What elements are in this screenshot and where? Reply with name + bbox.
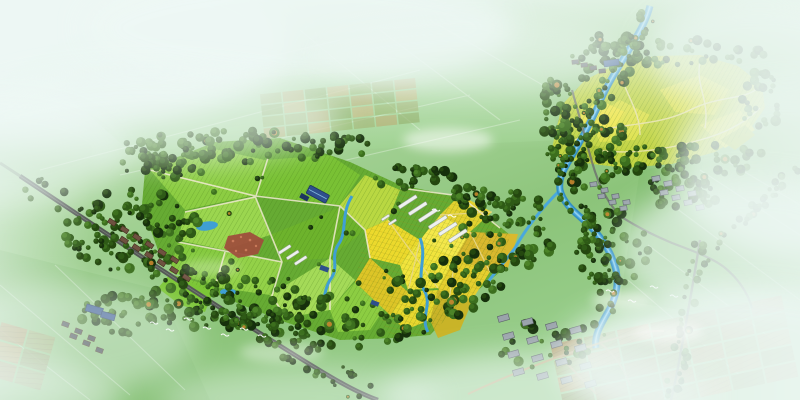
tree-highlight	[179, 281, 184, 286]
tree-highlight	[462, 273, 465, 276]
tree-highlight	[164, 278, 167, 281]
tree-highlight	[166, 299, 168, 301]
tree-highlight	[397, 202, 400, 205]
tree-highlight	[187, 312, 190, 315]
tree-highlight	[187, 228, 193, 234]
tree-highlight	[223, 309, 226, 312]
tree-highlight	[266, 324, 269, 327]
tree-highlight	[166, 229, 171, 234]
tree-highlight	[600, 158, 603, 161]
tree-highlight	[149, 203, 152, 206]
tree-highlight	[608, 157, 612, 161]
tree-highlight	[262, 317, 266, 321]
tree-highlight	[155, 223, 158, 226]
tree-highlight	[497, 283, 502, 288]
tree-highlight	[332, 269, 334, 271]
tree-highlight	[408, 289, 411, 292]
tree-highlight	[253, 307, 259, 313]
tree-highlight	[206, 285, 209, 288]
tree-highlight	[128, 192, 132, 196]
tree-highlight	[199, 301, 201, 303]
tree-highlight	[113, 210, 119, 216]
tree-highlight	[457, 282, 461, 286]
tree-highlight	[154, 228, 160, 234]
tree-highlight	[592, 223, 595, 226]
tree-highlight	[428, 294, 432, 298]
tree-highlight	[613, 217, 619, 223]
tree-highlight	[295, 314, 301, 320]
tree-highlight	[454, 287, 459, 292]
tree-highlight	[577, 159, 582, 164]
tree-highlight	[99, 244, 102, 247]
tree-highlight	[281, 321, 283, 323]
tree-highlight	[188, 165, 192, 169]
tree-highlight	[579, 265, 584, 270]
tree-highlight	[506, 198, 511, 203]
tree-highlight	[289, 326, 292, 329]
tree-highlight	[292, 338, 295, 341]
tree-highlight	[344, 231, 347, 234]
tree-highlight	[190, 213, 195, 218]
tree-highlight	[111, 232, 113, 234]
tree-highlight	[384, 269, 386, 271]
building	[623, 200, 631, 205]
tree-highlight	[128, 211, 130, 213]
tree-highlight	[359, 151, 363, 155]
autumn-tree	[461, 236, 463, 238]
tree-highlight	[634, 152, 637, 155]
tree-highlight	[484, 260, 487, 263]
tree-highlight	[275, 287, 278, 290]
tree-highlight	[604, 241, 608, 245]
tree-highlight	[379, 311, 382, 314]
tree-highlight	[294, 303, 298, 307]
flower-dot	[240, 236, 242, 238]
tree-highlight	[431, 263, 435, 267]
tree-highlight	[542, 227, 544, 229]
tree-highlight	[466, 197, 469, 200]
tree-highlight	[202, 277, 204, 279]
tree-highlight	[125, 264, 131, 270]
tree-highlight	[385, 314, 388, 317]
tree-highlight	[299, 330, 305, 336]
tree-highlight	[353, 336, 355, 338]
tree-highlight	[414, 170, 418, 174]
tree-highlight	[290, 313, 292, 315]
flower-dot	[235, 250, 237, 252]
tree-highlight	[525, 251, 531, 257]
tree-highlight	[257, 336, 261, 340]
tree-highlight	[342, 314, 347, 319]
tree-highlight	[484, 281, 488, 285]
tree-highlight	[487, 256, 489, 258]
tree-highlight	[271, 322, 276, 327]
tree-highlight	[484, 211, 486, 213]
tree-highlight	[95, 232, 99, 236]
tree-highlight	[229, 259, 233, 263]
tree-highlight	[448, 278, 453, 283]
tree-highlight	[555, 178, 560, 183]
tree-highlight	[116, 267, 118, 269]
tree-highlight	[560, 163, 563, 166]
tree-highlight	[383, 276, 385, 278]
tree-highlight	[558, 196, 562, 200]
tree-highlight	[387, 319, 390, 322]
tree-highlight	[165, 225, 167, 227]
cloud-puff	[240, 341, 324, 363]
tree-highlight	[157, 200, 161, 204]
tree-highlight	[387, 287, 391, 291]
tree-highlight	[360, 301, 363, 304]
tree-highlight	[416, 278, 422, 284]
tree-highlight	[309, 225, 312, 228]
tree-highlight	[174, 302, 176, 304]
tree-highlight	[356, 281, 359, 284]
tree-highlight	[516, 222, 518, 224]
tree-highlight	[471, 273, 474, 276]
tree-highlight	[111, 234, 116, 239]
tree-highlight	[204, 323, 206, 325]
tree-highlight	[317, 327, 322, 332]
flower-dot	[249, 239, 252, 242]
tree-highlight	[413, 290, 418, 295]
flower-dot	[232, 240, 235, 243]
tree-highlight	[201, 316, 204, 319]
tree-highlight	[540, 339, 543, 342]
tree-highlight	[623, 168, 627, 172]
tree-highlight	[378, 181, 382, 185]
tree-highlight	[310, 311, 315, 316]
tree-highlight	[221, 294, 224, 297]
autumn-tree	[559, 155, 561, 157]
tree-highlight	[410, 184, 413, 187]
tree-highlight	[199, 309, 202, 312]
tree-highlight	[216, 284, 218, 286]
tree-highlight	[458, 200, 460, 202]
tree-highlight	[345, 297, 348, 300]
tree-highlight	[342, 318, 345, 321]
tree-highlight	[402, 296, 406, 300]
tree-highlight	[359, 335, 362, 338]
tree-highlight	[601, 173, 607, 179]
tree-highlight	[185, 219, 189, 223]
tree-highlight	[97, 214, 100, 217]
tree-highlight	[462, 252, 464, 254]
tree-highlight	[211, 189, 214, 192]
tree-highlight	[254, 285, 256, 287]
building	[609, 200, 617, 205]
tree-highlight	[425, 288, 428, 291]
tree-highlight	[527, 221, 529, 223]
tree-highlight	[537, 204, 541, 208]
building	[601, 188, 609, 193]
tree-highlight	[166, 283, 172, 289]
tree-highlight	[455, 311, 460, 316]
tree-highlight	[547, 242, 552, 247]
tree-highlight	[487, 192, 493, 198]
tree-highlight	[422, 330, 425, 333]
building	[620, 206, 628, 211]
tree-highlight	[271, 313, 274, 316]
tree-highlight	[95, 259, 99, 263]
tree-highlight	[327, 341, 332, 346]
tree-highlight	[284, 293, 289, 298]
tree-highlight	[143, 219, 147, 223]
tree-highlight	[571, 176, 574, 179]
tree-highlight	[410, 307, 412, 309]
tree-highlight	[593, 281, 595, 283]
tree-highlight	[535, 196, 540, 201]
tree-highlight	[594, 273, 600, 279]
tree-highlight	[352, 307, 356, 311]
tree-highlight	[498, 254, 504, 260]
tree-highlight	[377, 329, 382, 334]
tree-highlight	[453, 268, 456, 271]
tree-highlight	[92, 224, 96, 228]
tree-highlight	[480, 215, 482, 217]
tree-highlight	[153, 270, 157, 274]
tree-highlight	[135, 197, 137, 199]
autumn-tree	[497, 242, 500, 245]
tree-highlight	[270, 318, 274, 322]
tree-highlight	[608, 269, 610, 271]
tree-highlight	[223, 315, 226, 318]
tree-highlight	[464, 184, 469, 189]
cloud-puff	[403, 128, 493, 152]
tree-highlight	[481, 207, 483, 209]
tree-highlight	[219, 276, 224, 281]
tree-highlight	[459, 224, 464, 229]
tree-highlight	[488, 232, 492, 236]
tree-highlight	[572, 187, 575, 190]
tree-highlight	[546, 152, 548, 154]
tree-highlight	[261, 176, 263, 178]
tree-highlight	[584, 205, 586, 207]
cloud-puff	[633, 322, 703, 342]
tree-highlight	[99, 239, 102, 242]
tree-highlight	[127, 234, 130, 237]
tree-highlight	[411, 177, 415, 181]
tree-highlight	[298, 154, 303, 159]
tree-highlight	[128, 249, 132, 253]
tree-highlight	[225, 284, 229, 288]
tree-highlight	[129, 187, 133, 191]
tree-highlight	[450, 244, 452, 246]
building	[598, 194, 606, 199]
tree-highlight	[462, 205, 465, 208]
tree-highlight	[176, 220, 180, 224]
tree-highlight	[534, 226, 538, 230]
tree-highlight	[492, 201, 496, 205]
tree-highlight	[150, 275, 153, 278]
tree-highlight	[320, 216, 322, 218]
tree-highlight	[578, 238, 583, 243]
tree-highlight	[498, 259, 501, 262]
tree-highlight	[410, 297, 414, 301]
tree-highlight	[418, 306, 422, 310]
tree-highlight	[487, 244, 491, 248]
tree-highlight	[602, 279, 606, 283]
tree-highlight	[581, 245, 587, 251]
tree-highlight	[510, 339, 514, 343]
tree-highlight	[385, 338, 389, 342]
tree-highlight	[176, 237, 179, 240]
tree-highlight	[539, 217, 541, 219]
tree-highlight	[394, 276, 399, 281]
tree-highlight	[503, 222, 505, 224]
tree-highlight	[552, 331, 556, 335]
tree-highlight	[621, 157, 627, 163]
tree-highlight	[346, 321, 352, 327]
tree-highlight	[614, 166, 617, 169]
tree-highlight	[404, 325, 409, 330]
tree-highlight	[235, 318, 238, 321]
tree-highlight	[525, 261, 530, 266]
tree-highlight	[295, 324, 299, 328]
tree-highlight	[103, 189, 108, 194]
tree-highlight	[495, 196, 498, 199]
tree-highlight	[481, 187, 485, 191]
tree-highlight	[137, 213, 142, 218]
tree-highlight	[267, 310, 271, 314]
tree-highlight	[256, 290, 260, 294]
tree-highlight	[211, 311, 215, 315]
tree-highlight	[588, 276, 590, 278]
building	[590, 182, 598, 187]
scene-svg	[0, 0, 800, 400]
tree-highlight	[252, 277, 256, 281]
tree-highlight	[236, 291, 238, 293]
tree-highlight	[162, 176, 164, 178]
tree-highlight	[589, 272, 592, 275]
tree-highlight	[584, 213, 588, 217]
tree-highlight	[318, 340, 322, 344]
tree-highlight	[414, 165, 418, 169]
tree-highlight	[94, 239, 97, 242]
tree-highlight	[109, 251, 112, 254]
tree-highlight	[167, 244, 169, 246]
tree-highlight	[432, 174, 435, 177]
tree-highlight	[281, 284, 284, 287]
tree-highlight	[557, 169, 560, 172]
tree-highlight	[400, 166, 404, 170]
tree-highlight	[318, 295, 323, 300]
tree-highlight	[464, 256, 469, 261]
tree-highlight	[589, 224, 592, 227]
tree-highlight	[123, 205, 127, 209]
tree-highlight	[183, 292, 187, 296]
tree-highlight	[391, 313, 394, 316]
tree-highlight	[610, 173, 613, 176]
tree-highlight	[395, 333, 400, 338]
tree-highlight	[356, 343, 360, 347]
tree-highlight	[247, 312, 251, 316]
tree-highlight	[514, 189, 519, 194]
tree-highlight	[229, 313, 232, 316]
tree-highlight	[187, 295, 192, 300]
tree-highlight	[303, 296, 305, 298]
tree-highlight	[410, 168, 413, 171]
tree-highlight	[488, 216, 491, 219]
tree-highlight	[470, 249, 476, 255]
tree-highlight	[509, 190, 512, 193]
tree-highlight	[575, 167, 580, 172]
tree-highlight	[568, 208, 571, 211]
tree-highlight	[498, 233, 501, 236]
tree-highlight	[440, 167, 444, 171]
tree-highlight	[238, 283, 241, 286]
tree-highlight	[219, 308, 223, 312]
tree-highlight	[601, 257, 606, 262]
tree-highlight	[148, 266, 152, 270]
tree-highlight	[153, 250, 155, 252]
autumn-tree	[228, 212, 231, 215]
tree-highlight	[264, 315, 266, 317]
tree-highlight	[525, 245, 530, 250]
flower-dot	[245, 249, 248, 252]
tree-highlight	[436, 273, 440, 277]
autumn-tree	[605, 212, 609, 216]
tree-highlight	[193, 218, 199, 224]
tree-highlight	[441, 291, 446, 296]
tree-highlight	[198, 169, 202, 173]
tree-highlight	[237, 305, 240, 308]
tree-highlight	[350, 231, 353, 234]
tree-highlight	[603, 151, 606, 154]
tree-highlight	[432, 166, 436, 170]
tree-highlight	[534, 232, 537, 235]
tree-highlight	[140, 205, 146, 211]
building	[612, 194, 620, 199]
tree-highlight	[291, 286, 296, 291]
tree-highlight	[433, 239, 435, 241]
tree-highlight	[460, 295, 465, 300]
tree-highlight	[478, 193, 482, 197]
tree-highlight	[511, 257, 516, 262]
tree-highlight	[472, 186, 475, 189]
tree-highlight	[317, 262, 319, 264]
tree-highlight	[109, 268, 111, 270]
mist-cloud	[310, 17, 630, 93]
tree-highlight	[626, 152, 629, 155]
tree-highlight	[591, 258, 594, 261]
tree-highlight	[175, 204, 178, 207]
tree-highlight	[315, 154, 318, 157]
tree-highlight	[396, 179, 400, 183]
tree-highlight	[614, 208, 618, 212]
tree-highlight	[180, 230, 184, 234]
tree-highlight	[581, 154, 584, 157]
tree-highlight	[614, 162, 616, 164]
tree-highlight	[561, 329, 567, 335]
tree-highlight	[269, 297, 274, 302]
tree-highlight	[256, 322, 258, 324]
tree-highlight	[170, 215, 174, 219]
tree-highlight	[238, 299, 240, 301]
tree-highlight	[445, 310, 447, 312]
tree-highlight	[109, 241, 113, 245]
tree-highlight	[462, 288, 465, 291]
tree-highlight	[428, 318, 430, 320]
tree-highlight	[571, 173, 573, 175]
tree-highlight	[565, 202, 567, 204]
autumn-tree	[449, 300, 454, 305]
tree-highlight	[175, 246, 180, 251]
tree-highlight	[575, 250, 578, 253]
tree-highlight	[214, 292, 217, 295]
tree-highlight	[520, 196, 523, 199]
tree-highlight	[327, 150, 330, 153]
